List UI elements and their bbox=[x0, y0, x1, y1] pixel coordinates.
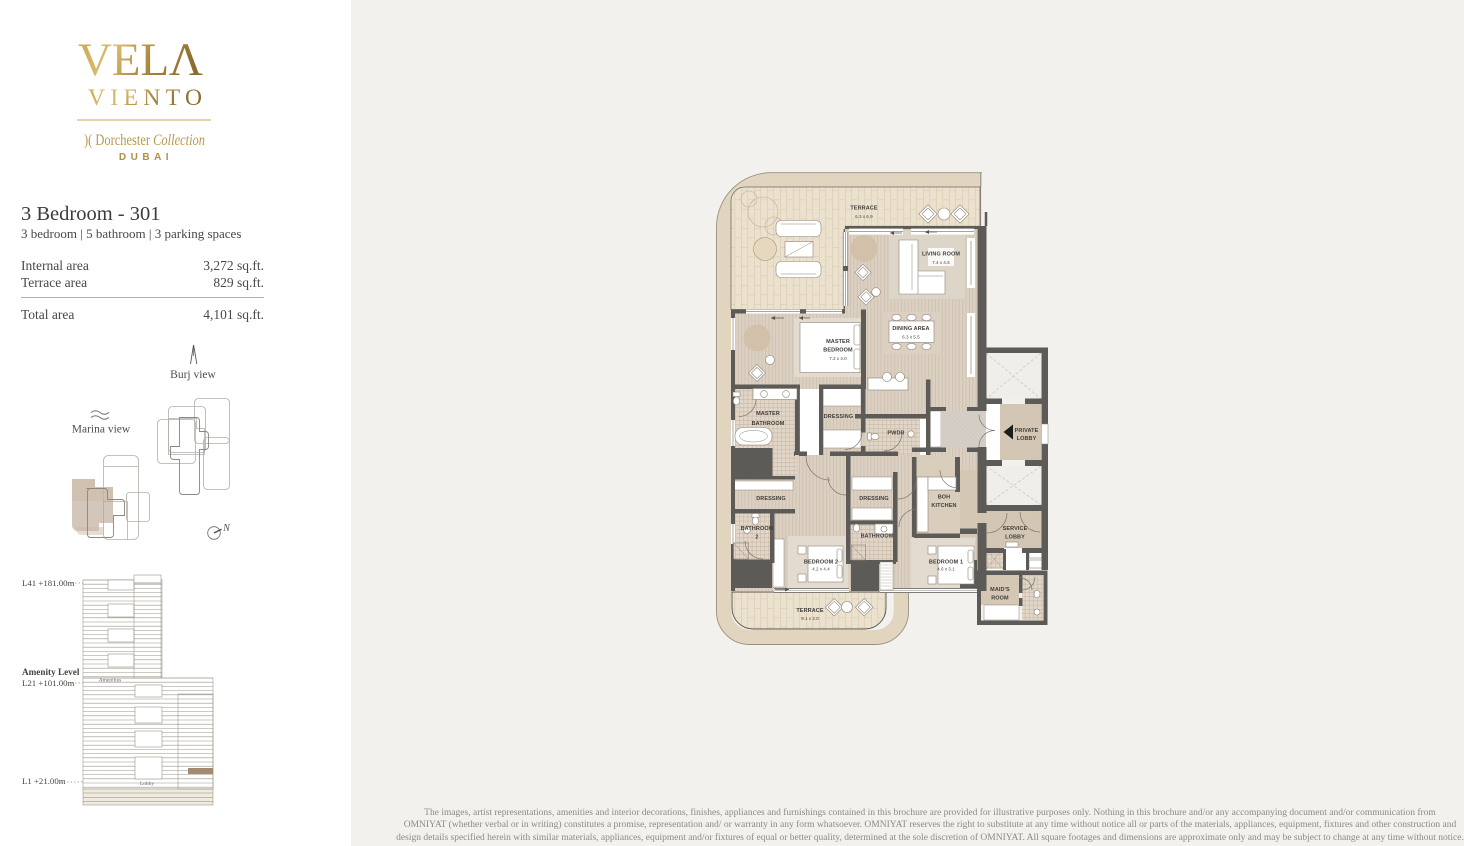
svg-text:DRESSING: DRESSING bbox=[859, 496, 889, 502]
svg-text:L21 +101.00m: L21 +101.00m bbox=[22, 678, 75, 688]
svg-text:VELΛ: VELΛ bbox=[78, 34, 203, 86]
svg-text:N: N bbox=[222, 523, 231, 534]
svg-text:DUBAI: DUBAI bbox=[119, 152, 173, 163]
svg-text:Marina view: Marina view bbox=[72, 424, 131, 436]
svg-text:BEDROOM 2: BEDROOM 2 bbox=[804, 560, 838, 566]
svg-text:6.3 x 5.5: 6.3 x 5.5 bbox=[902, 335, 920, 340]
svg-text:9.1 x 2.0: 9.1 x 2.0 bbox=[801, 616, 819, 621]
svg-text:ROOM: ROOM bbox=[991, 596, 1009, 602]
svg-text:BOH: BOH bbox=[938, 495, 951, 501]
svg-text:BEDROOM: BEDROOM bbox=[823, 348, 853, 354]
svg-text:BATHROOM: BATHROOM bbox=[741, 526, 774, 532]
svg-text:4.6 x 3.1: 4.6 x 3.1 bbox=[937, 567, 955, 572]
svg-text:Amenity Level: Amenity Level bbox=[22, 667, 80, 677]
svg-text:L41 +181.00m: L41 +181.00m bbox=[22, 578, 75, 588]
svg-text:DRESSING: DRESSING bbox=[824, 414, 854, 420]
svg-text:LOBBY: LOBBY bbox=[1017, 436, 1037, 442]
svg-text:TERRACE: TERRACE bbox=[796, 608, 824, 614]
svg-text:SERVICE: SERVICE bbox=[1003, 526, 1028, 532]
svg-text:BATHROOM: BATHROOM bbox=[861, 534, 894, 540]
svg-text:DRESSING: DRESSING bbox=[756, 496, 786, 502]
svg-text:LIVING ROOM: LIVING ROOM bbox=[922, 252, 960, 258]
svg-text:7.2 x 4.0: 7.2 x 4.0 bbox=[829, 356, 847, 361]
svg-text:BEDROOM 1: BEDROOM 1 bbox=[929, 560, 963, 566]
svg-text:L1 +21.00m: L1 +21.00m bbox=[22, 776, 66, 786]
svg-text:Lobby: Lobby bbox=[140, 781, 155, 787]
svg-text:MASTER: MASTER bbox=[826, 339, 850, 345]
svg-text:4.2 x 4.4: 4.2 x 4.4 bbox=[812, 567, 830, 572]
svg-text:MASTER: MASTER bbox=[756, 411, 780, 417]
svg-text:2: 2 bbox=[755, 535, 758, 541]
svg-text:VIENTO: VIENTO bbox=[88, 85, 202, 111]
svg-text:Burj view: Burj view bbox=[170, 369, 216, 381]
svg-text:PWDR: PWDR bbox=[887, 431, 904, 437]
svg-text:BATHROOM: BATHROOM bbox=[752, 421, 785, 427]
svg-text:PRIVATE: PRIVATE bbox=[1015, 428, 1039, 434]
svg-text:Amenities: Amenities bbox=[99, 678, 122, 684]
svg-text:7.4 x 4.5: 7.4 x 4.5 bbox=[932, 260, 950, 265]
svg-text:MAID'S: MAID'S bbox=[990, 587, 1010, 593]
svg-text:KITCHEN: KITCHEN bbox=[931, 503, 956, 509]
svg-text:LOBBY: LOBBY bbox=[1005, 535, 1025, 541]
svg-text:)( Dorchester Collection: )( Dorchester Collection bbox=[84, 132, 205, 149]
svg-text:6.3 x 6.9: 6.3 x 6.9 bbox=[855, 214, 873, 219]
svg-text:TERRACE: TERRACE bbox=[850, 206, 878, 212]
svg-text:DINING AREA: DINING AREA bbox=[892, 326, 929, 332]
